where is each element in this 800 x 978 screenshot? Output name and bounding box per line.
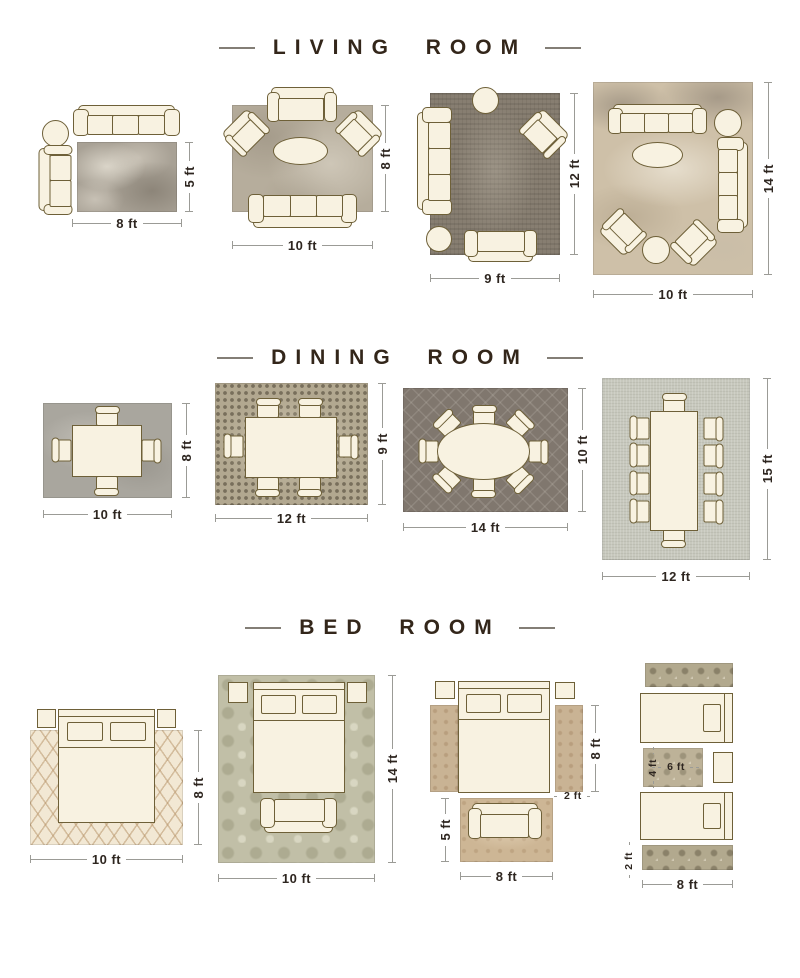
- dimension-line: [593, 294, 653, 295]
- sofa-seats: [88, 115, 165, 136]
- sofa-seats: [428, 122, 451, 200]
- dining-chair: [422, 441, 439, 463]
- dimension-line: [311, 518, 368, 519]
- dining-chair: [227, 436, 244, 458]
- armchair-wrapper: [600, 209, 646, 255]
- dining-room-layout-2: 12 ft 9 ft: [213, 380, 388, 525]
- dimension-line: [653, 781, 654, 788]
- title-dash: [219, 47, 255, 49]
- bed: [253, 682, 345, 793]
- section-title-bed-room: BED ROOM: [0, 616, 800, 640]
- pillows: [254, 690, 344, 721]
- dining-chair: [96, 409, 118, 426]
- sofa-cushion: [138, 115, 165, 136]
- dimension-label: 10 ft: [282, 871, 311, 886]
- sofa-cushion: [480, 814, 529, 838]
- dimension-line: [587, 796, 592, 797]
- sofa-arm: [260, 798, 275, 828]
- sofa-wrapper: [417, 107, 453, 215]
- dimension-label: 8 ft: [191, 777, 206, 799]
- dimension-line: [385, 105, 386, 143]
- rug-size-guide: LIVING ROOM 8 ft 5 ft: [0, 0, 800, 978]
- runner-width-dimension: 2 ft: [554, 788, 588, 804]
- dimension-label: 5 ft: [438, 819, 453, 841]
- sofa-cushion: [718, 172, 739, 196]
- pillow: [67, 722, 103, 741]
- dimension-line: [653, 747, 654, 754]
- sofa-arm: [248, 194, 264, 223]
- height-dimension: 8 ft: [377, 105, 393, 212]
- pillows: [459, 689, 549, 720]
- dining-chair: [633, 501, 650, 523]
- dimension-line: [392, 789, 393, 863]
- sofa-back: [253, 216, 351, 228]
- dimension-label: 5 ft: [182, 166, 197, 188]
- sofa-cushion: [263, 195, 291, 218]
- dimension-line: [392, 675, 393, 749]
- dimension-label: 8 ft: [588, 738, 603, 760]
- dining-room-layout-1: 10 ft 8 ft: [40, 395, 205, 525]
- section-heading: BED ROOM: [299, 616, 501, 640]
- dimension-label: 9 ft: [484, 271, 506, 286]
- round-side-table: [714, 109, 742, 137]
- section-title-dining-room: DINING ROOM: [0, 346, 800, 370]
- dimension-label: 8 ft: [378, 148, 393, 170]
- sofa-seats: [481, 814, 528, 838]
- dining-chair: [704, 445, 721, 467]
- dimension-line: [186, 403, 187, 435]
- dimension-line: [322, 245, 373, 246]
- sofa-arm: [692, 108, 707, 134]
- dining-table: [72, 425, 142, 477]
- bed: [58, 709, 155, 823]
- width-dimension: 8 ft: [72, 215, 182, 231]
- dimension-line: [445, 798, 446, 814]
- living-room-layout-3: 9 ft 12 ft: [415, 80, 595, 290]
- sofa: [248, 193, 357, 228]
- armchair: [517, 107, 571, 161]
- round-side-table: [42, 120, 69, 147]
- dimension-line: [385, 174, 386, 212]
- round-side-table: [426, 226, 452, 252]
- sofa-cushion: [87, 115, 114, 136]
- nightstand: [157, 709, 176, 728]
- foot-rug-height-dimension: 5 ft: [437, 798, 453, 862]
- dimension-line: [189, 193, 190, 212]
- pillow: [703, 704, 721, 732]
- loveseat: [464, 229, 537, 262]
- round-side-table: [472, 87, 499, 114]
- pillow: [703, 803, 721, 829]
- dining-table: [245, 417, 337, 478]
- dimension-label: 8 ft: [179, 440, 194, 462]
- sofa: [417, 107, 453, 215]
- dimension-line: [574, 194, 575, 255]
- armchair-wrapper: [336, 110, 382, 156]
- bed-room-layout-4: 4 ft 6 ft 2 ft 8 ft: [620, 655, 800, 895]
- dining-chair: [704, 501, 721, 523]
- height-dimension: 12 ft: [566, 93, 582, 255]
- dimension-line: [690, 767, 700, 768]
- dimension-line: [316, 878, 375, 879]
- width-dimension: 10 ft: [593, 286, 753, 302]
- runner-length-dimension: 8 ft: [642, 876, 733, 892]
- sofa-arm: [422, 199, 452, 215]
- sofa-seats: [49, 155, 72, 205]
- bed-room-layout-1: 10 ft 8 ft: [28, 700, 213, 870]
- sofa-arm: [164, 109, 180, 136]
- dimension-line: [189, 142, 190, 161]
- living-room-layout-1: 8 ft 5 ft: [28, 95, 208, 245]
- dimension-label: 10 ft: [92, 852, 121, 867]
- dimension-label: 10 ft: [575, 435, 590, 464]
- sofa-cushion: [428, 148, 451, 175]
- dining-chair: [299, 401, 321, 418]
- nightstand: [347, 682, 367, 703]
- dimension-line: [382, 460, 383, 505]
- title-dash: [547, 357, 583, 359]
- area-rug: [77, 142, 177, 212]
- dimension-line: [602, 576, 656, 577]
- sofa-cushion: [112, 115, 139, 136]
- dimension-line: [574, 93, 575, 154]
- height-dimension: 9 ft: [374, 383, 390, 505]
- width-dimension: 12 ft: [215, 510, 368, 526]
- dimension-line: [460, 876, 491, 877]
- dimension-line: [218, 878, 277, 879]
- height-dimension: 5 ft: [181, 142, 197, 212]
- dimension-line: [652, 767, 662, 768]
- sofa-cushion: [718, 149, 739, 173]
- foot-rug-width-dimension: 8 ft: [460, 868, 553, 884]
- runner-length-dimension: 8 ft: [587, 705, 603, 792]
- sofa-arm: [717, 219, 744, 233]
- bed-room-layout-2: 10 ft 14 ft: [215, 670, 405, 885]
- headboard: [59, 710, 154, 717]
- sofa: [716, 137, 748, 233]
- sofa-arm: [422, 107, 452, 123]
- section-heading: DINING ROOM: [271, 346, 529, 370]
- sofa-cushion: [644, 113, 669, 133]
- dimension-label: 14 ft: [471, 520, 500, 535]
- nightstand: [37, 709, 56, 728]
- dining-chair: [339, 436, 356, 458]
- dimension-line: [629, 875, 630, 880]
- twin-bed: [640, 693, 733, 743]
- sofa-seats: [280, 98, 325, 121]
- living-room-layout-2: 10 ft 8 ft: [215, 85, 400, 250]
- nightstand: [435, 681, 455, 699]
- height-dimension: 8 ft: [190, 730, 206, 845]
- sofa-wrapper: [38, 145, 73, 215]
- height-dimension: 10 ft: [574, 388, 590, 512]
- runner-rug: [645, 663, 733, 687]
- nightstand: [228, 682, 248, 703]
- headboard: [459, 682, 549, 689]
- sofa-seats: [274, 799, 323, 822]
- headboard: [724, 694, 732, 742]
- width-dimension: 12 ft: [602, 568, 750, 584]
- bed-body: [459, 720, 549, 792]
- pillow: [466, 694, 500, 713]
- nightstand: [555, 682, 575, 699]
- bed-body: [641, 793, 700, 839]
- sofa-arm: [523, 230, 537, 258]
- dimension-label: 8 ft: [496, 869, 518, 884]
- sofa-wrapper: [716, 137, 748, 233]
- pillow: [302, 695, 336, 714]
- dimension-line: [403, 527, 466, 528]
- sofa-cushion: [620, 113, 645, 133]
- dimension-line: [522, 876, 553, 877]
- height-dimension: 8 ft: [178, 403, 194, 498]
- pillow: [110, 722, 146, 741]
- dining-chair: [529, 441, 546, 463]
- dimension-line: [642, 884, 672, 885]
- sofa-back: [737, 142, 748, 228]
- bed: [458, 681, 550, 793]
- bed-body: [641, 694, 700, 742]
- width-dimension: 10 ft: [30, 851, 183, 867]
- dimension-line: [696, 576, 750, 577]
- dining-chair: [55, 440, 72, 462]
- bed-body: [59, 748, 154, 822]
- armchair: [220, 107, 272, 159]
- dimension-label: 8 ft: [116, 216, 138, 231]
- title-dash: [519, 627, 555, 629]
- dimension-label: 12 ft: [277, 511, 306, 526]
- width-dimension: 10 ft: [218, 870, 375, 886]
- sofa-cushion: [289, 195, 317, 218]
- dimension-line: [430, 278, 479, 279]
- dimension-line: [629, 842, 630, 847]
- twin-bed: [640, 792, 733, 840]
- dimension-line: [382, 383, 383, 428]
- dimension-line: [232, 245, 283, 246]
- dining-room-layout-3: 14 ft 10 ft: [403, 385, 588, 530]
- height-dimension: 14 ft: [384, 675, 400, 863]
- dimension-line: [143, 223, 182, 224]
- dimension-line: [582, 388, 583, 430]
- dining-chair: [633, 445, 650, 467]
- dimension-label: 14 ft: [385, 754, 400, 783]
- dimension-label: 12 ft: [661, 569, 690, 584]
- loveseat: [267, 87, 337, 123]
- sofa: [73, 105, 180, 137]
- nightstand: [713, 752, 733, 783]
- bench: [468, 803, 542, 840]
- bedside-runner-rug: [555, 705, 583, 792]
- dining-chair: [257, 401, 279, 418]
- sofa-arm: [528, 808, 542, 839]
- bench: [260, 797, 337, 833]
- headboard: [254, 683, 344, 690]
- dining-chair: [257, 477, 279, 494]
- dimension-line: [127, 514, 172, 515]
- dining-chair: [704, 418, 721, 440]
- armchair: [668, 217, 720, 269]
- dimension-line: [198, 730, 199, 772]
- dimension-line: [43, 514, 88, 515]
- sofa: [608, 104, 707, 135]
- dimension-line: [768, 198, 769, 275]
- dimension-line: [768, 82, 769, 159]
- dimension-line: [693, 294, 753, 295]
- bed-body: [254, 721, 344, 792]
- dimension-line: [582, 470, 583, 512]
- dimension-label: 6 ft: [667, 760, 685, 775]
- sofa-arm: [324, 92, 337, 122]
- armchair-wrapper: [671, 220, 717, 266]
- dimension-label: 10 ft: [658, 287, 687, 302]
- dimension-label: 2 ft: [622, 852, 637, 870]
- dimension-line: [445, 846, 446, 862]
- round-side-table: [642, 236, 670, 264]
- oval-coffee-table: [632, 142, 683, 168]
- dimension-label: 9 ft: [375, 433, 390, 455]
- dimension-line: [595, 764, 596, 792]
- dining-chair: [633, 473, 650, 495]
- sofa-seats: [477, 231, 524, 252]
- oval-dining-table: [437, 423, 530, 480]
- sofa-cushion: [274, 799, 325, 822]
- pillow: [261, 695, 295, 714]
- title-dash: [545, 47, 581, 49]
- living-room-layout-4: 10 ft 14 ft: [593, 75, 788, 315]
- dining-chair: [96, 476, 118, 493]
- bed-room-layout-3: 8 ft 2 ft 5 ft 8 ft: [428, 672, 608, 887]
- section-heading: LIVING ROOM: [273, 36, 527, 60]
- dining-chair: [704, 473, 721, 495]
- dimension-line: [767, 489, 768, 560]
- dimension-label: 12 ft: [567, 159, 582, 188]
- sofa-cushion: [428, 174, 451, 201]
- sofa-cushion: [477, 231, 525, 252]
- dimension-line: [126, 859, 183, 860]
- sofa-cushion: [428, 122, 451, 149]
- sofa-arm: [322, 798, 337, 828]
- height-dimension: 15 ft: [759, 378, 775, 560]
- dimension-label: 14 ft: [761, 164, 776, 193]
- dimension-line: [554, 796, 559, 797]
- oval-coffee-table: [273, 137, 328, 165]
- sofa-cushion: [49, 180, 72, 207]
- dimension-line: [595, 705, 596, 733]
- runner-rug: [642, 845, 733, 870]
- bedside-runner-rug: [430, 705, 458, 792]
- dimension-line: [511, 278, 560, 279]
- pillow: [507, 694, 541, 713]
- headboard: [724, 793, 732, 839]
- dining-chair: [473, 478, 495, 495]
- dining-table: [650, 411, 698, 531]
- dimension-line: [215, 518, 272, 519]
- width-dimension: 10 ft: [232, 237, 373, 253]
- dimension-line: [505, 527, 568, 528]
- sofa-seats: [622, 113, 693, 133]
- width-dimension: 14 ft: [403, 519, 568, 535]
- sofa-seats: [718, 150, 739, 219]
- sofa-cushion: [316, 195, 344, 218]
- sofa: [38, 145, 73, 215]
- dimension-label: 10 ft: [93, 507, 122, 522]
- sofa-cushion: [278, 98, 324, 121]
- section-title-living-room: LIVING ROOM: [0, 36, 800, 60]
- dimension-label: 8 ft: [677, 877, 699, 892]
- pillows: [59, 717, 154, 748]
- sofa-arm: [464, 230, 478, 258]
- title-dash: [245, 627, 281, 629]
- dimension-line: [703, 884, 733, 885]
- dining-chair: [633, 418, 650, 440]
- width-dimension: 10 ft: [43, 506, 172, 522]
- dining-chair: [142, 440, 159, 462]
- height-dimension: 14 ft: [760, 82, 776, 275]
- sofa-cushion: [49, 155, 72, 182]
- dining-chair: [299, 477, 321, 494]
- armchair-wrapper: [223, 110, 269, 156]
- sofa-seats: [263, 195, 342, 218]
- dimension-line: [198, 803, 199, 845]
- dimension-line: [72, 223, 111, 224]
- sofa-cushion: [718, 195, 739, 219]
- dimension-label: 15 ft: [760, 454, 775, 483]
- armchair-wrapper: [520, 110, 568, 158]
- dimension-label: 2 ft: [564, 789, 582, 804]
- dimension-line: [186, 466, 187, 498]
- sofa-arm: [341, 194, 357, 223]
- title-dash: [217, 357, 253, 359]
- between-rug-width-dimension: 6 ft: [652, 759, 700, 775]
- dimension-line: [767, 378, 768, 449]
- dining-room-layout-4: 12 ft 15 ft: [600, 375, 785, 580]
- dimension-line: [30, 859, 87, 860]
- width-dimension: 9 ft: [430, 270, 560, 286]
- dimension-label: 10 ft: [288, 238, 317, 253]
- sofa-cushion: [668, 113, 693, 133]
- runner-width-dimension: 2 ft: [621, 842, 637, 873]
